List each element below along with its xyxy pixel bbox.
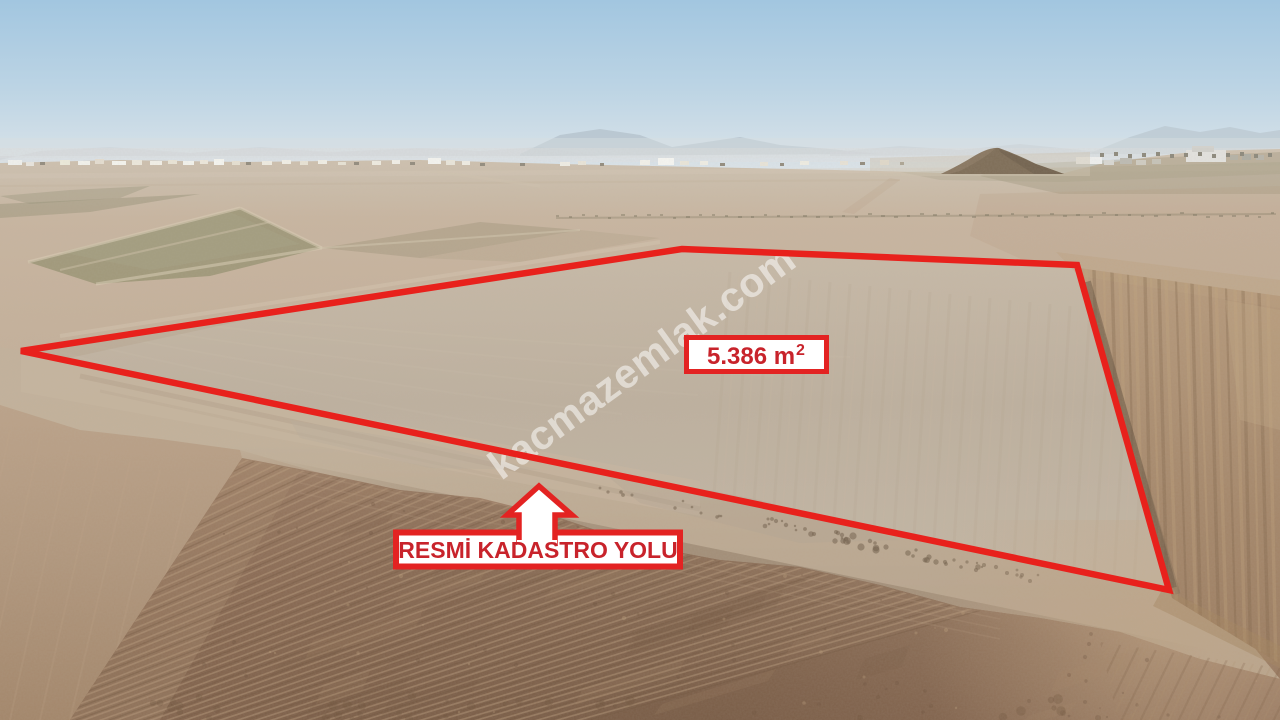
svg-text:RESMİ KADASTRO YOLU: RESMİ KADASTRO YOLU <box>398 537 677 563</box>
svg-text:2: 2 <box>796 342 805 359</box>
svg-text:5.386 m: 5.386 m <box>707 343 795 370</box>
